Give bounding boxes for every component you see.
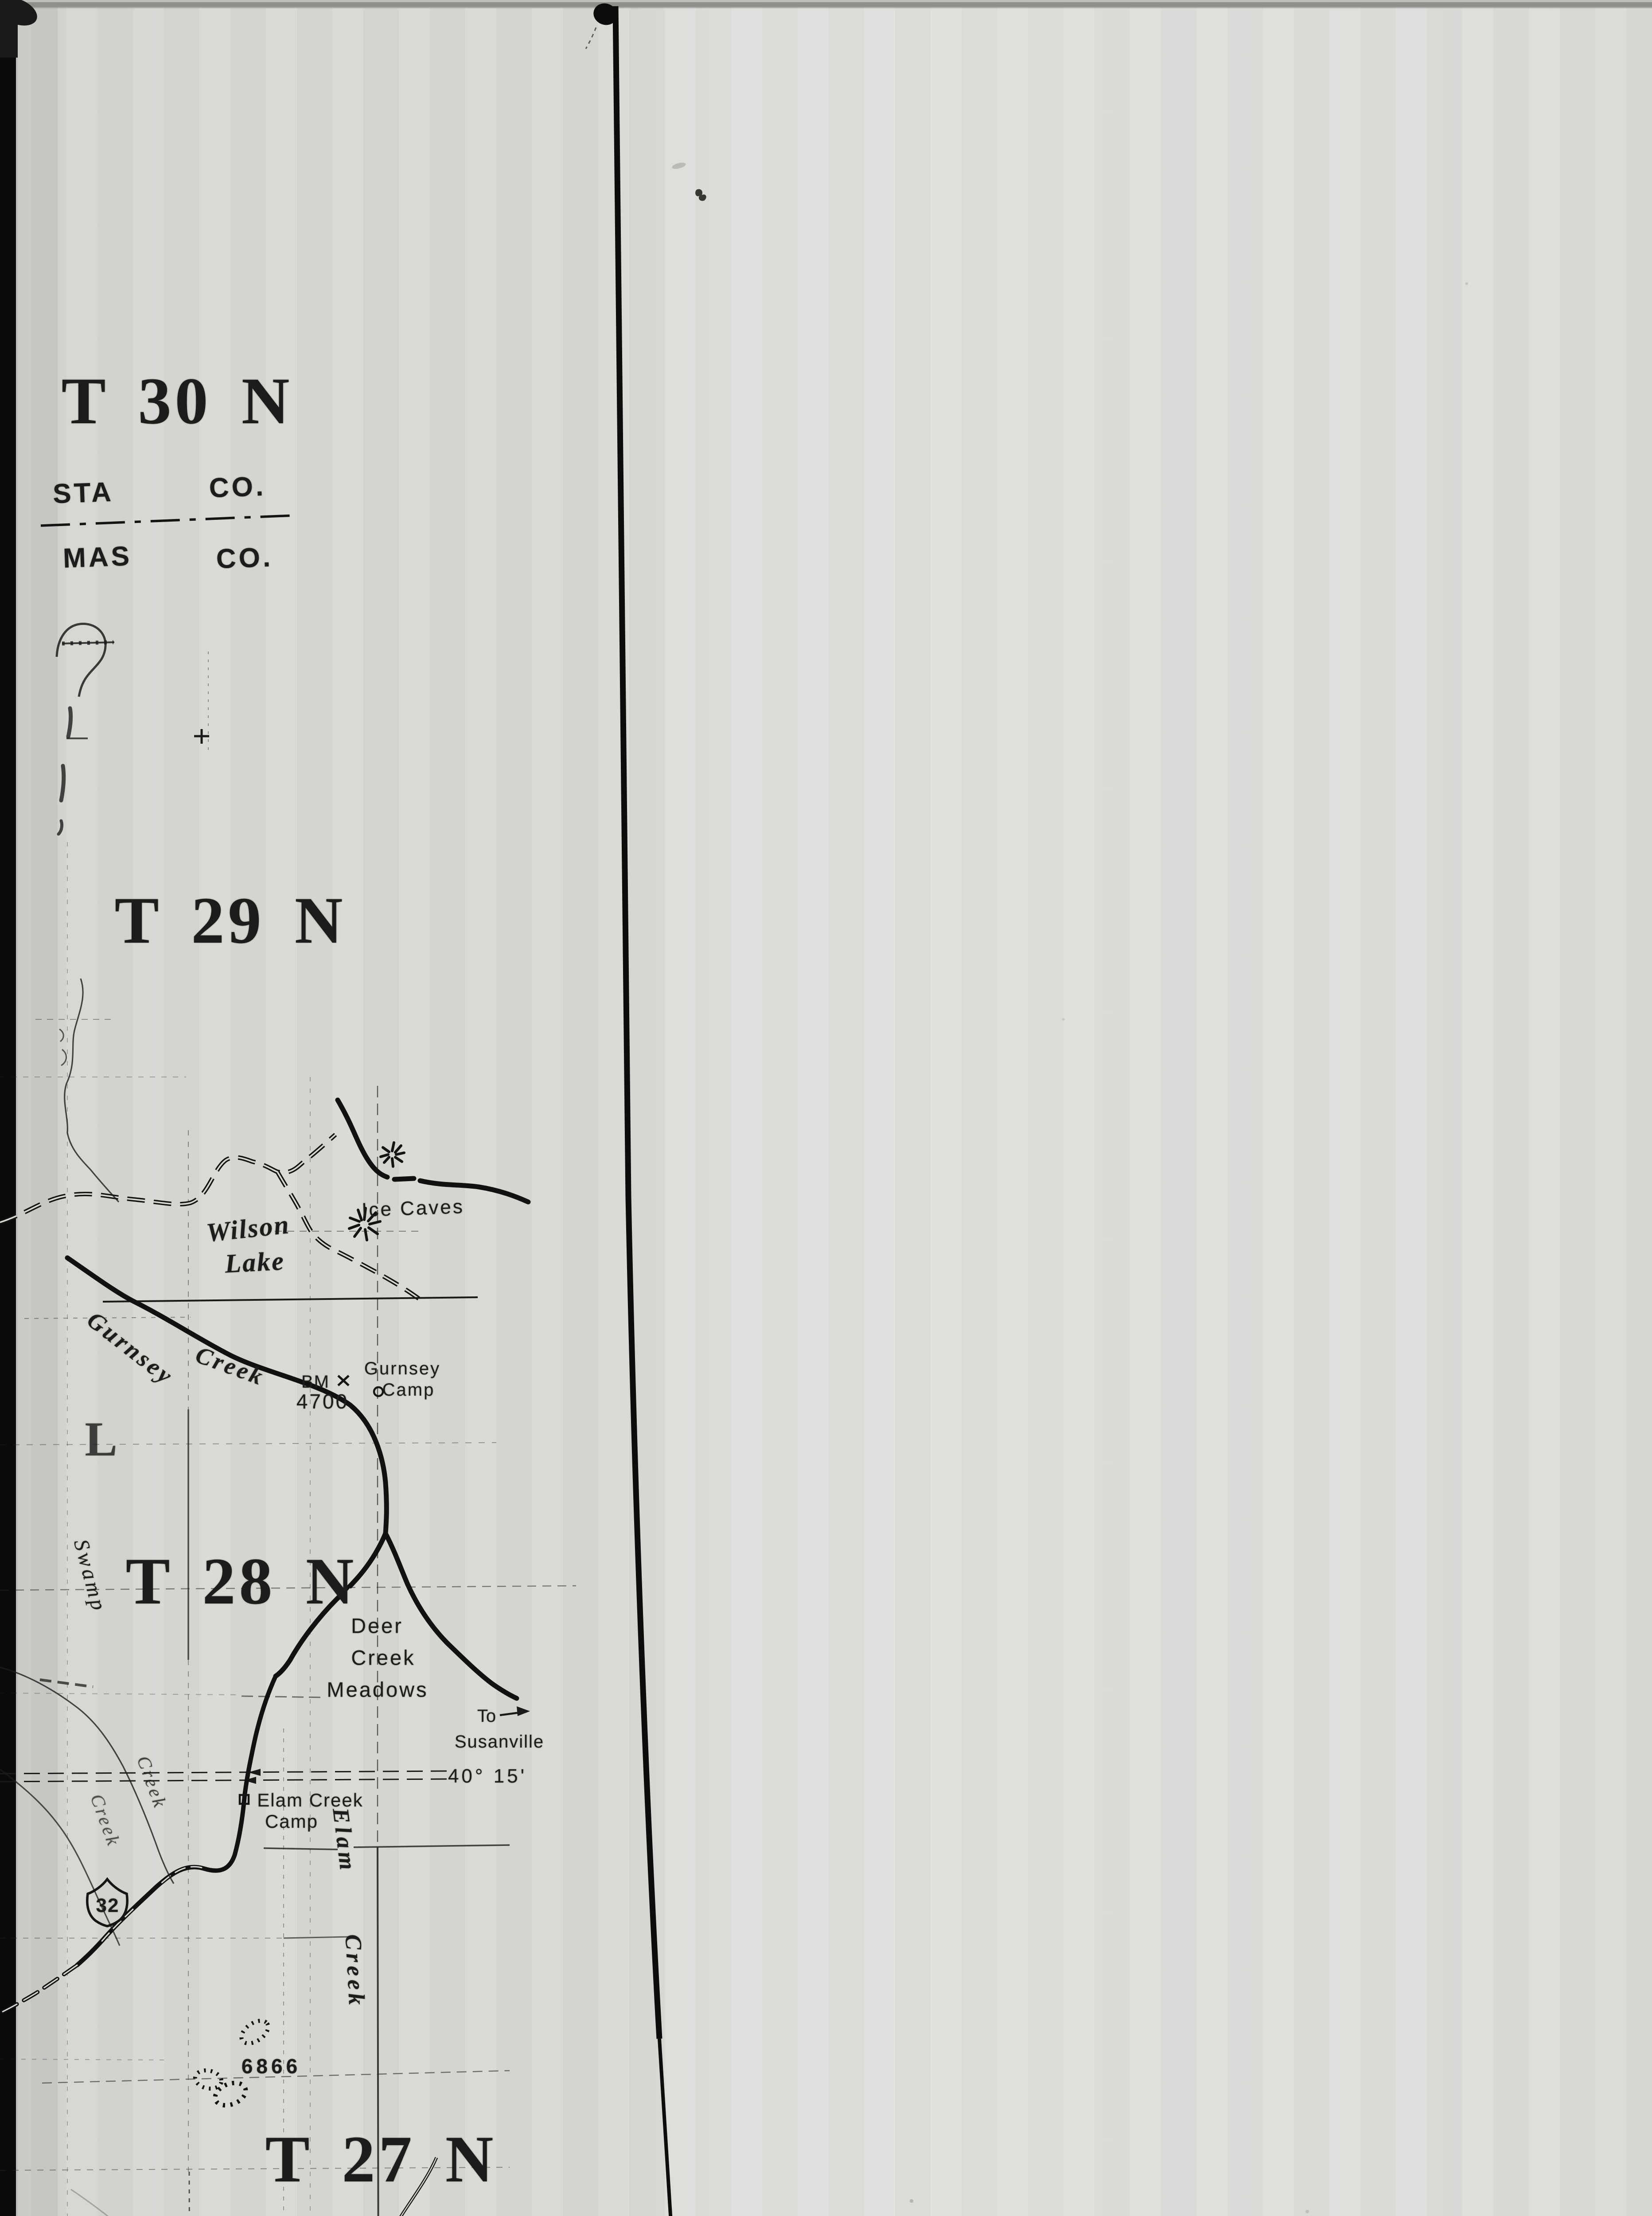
label-county-plumas-fragment: MAS [62, 542, 132, 572]
scanned-map-photograph: { "photo": { "townships": { "t30": "T 30… [0, 0, 1652, 2216]
label-susanville: Susanville [455, 1733, 544, 1751]
label-wilson-lake-line2: Lake [224, 1248, 285, 1277]
label-creek-b: Creek [87, 1792, 123, 1850]
label-to: To [477, 1707, 496, 1725]
label-deer-creek-meadows-line1: Deer [351, 1615, 403, 1636]
label-township-t30n: T 30 N [62, 368, 293, 434]
label-county-plumas-co: CO. [216, 544, 273, 573]
label-deer-creek-meadows-line3: Meadows [327, 1679, 428, 1700]
label-benchmark-elevation: 4700 [296, 1391, 349, 1412]
label-elam-vertical: Elam [328, 1807, 359, 1875]
label-swamp: Swamp [70, 1537, 110, 1615]
label-gurnsey-camp-line1: Gurnsey [364, 1360, 440, 1377]
label-ice-caves: Ice Caves [361, 1197, 464, 1220]
label-deer-creek-meadows-line2: Creek [351, 1647, 415, 1668]
label-county-shasta-fragment: STA [52, 479, 114, 508]
label-letter-l: L [85, 1415, 117, 1463]
label-township-t27n: T 27 N [265, 2126, 497, 2193]
label-township-t29n: T 29 N [115, 887, 347, 954]
label-benchmark: BM [301, 1373, 330, 1391]
label-gurnsey-camp-line2: Camp [382, 1381, 435, 1399]
map-labels: T 30 N T 29 N T 28 N T 27 N STA CO. MAS … [0, 0, 1652, 2216]
label-elam-creek-vertical: Creek [341, 1934, 368, 2009]
label-creek-a: Creek [133, 1754, 170, 1812]
label-route-32: 32 [96, 1896, 120, 1916]
label-latitude: 40° 15' [448, 1767, 527, 1786]
label-creek-c: Creek [123, 2214, 183, 2216]
label-county-shasta-co: CO. [209, 473, 266, 502]
label-wilson-lake-line1: Wilson [205, 1211, 291, 1246]
label-township-t28n: T 28 N [126, 1548, 358, 1615]
label-gurnsey-creek-word1: Gurnsey [83, 1307, 178, 1389]
label-gurnsey-creek-word2: Creek [193, 1342, 269, 1389]
label-elevation-6866: 6866 [242, 2056, 301, 2076]
label-elam-creek-camp-line2: Camp [265, 1812, 318, 1831]
